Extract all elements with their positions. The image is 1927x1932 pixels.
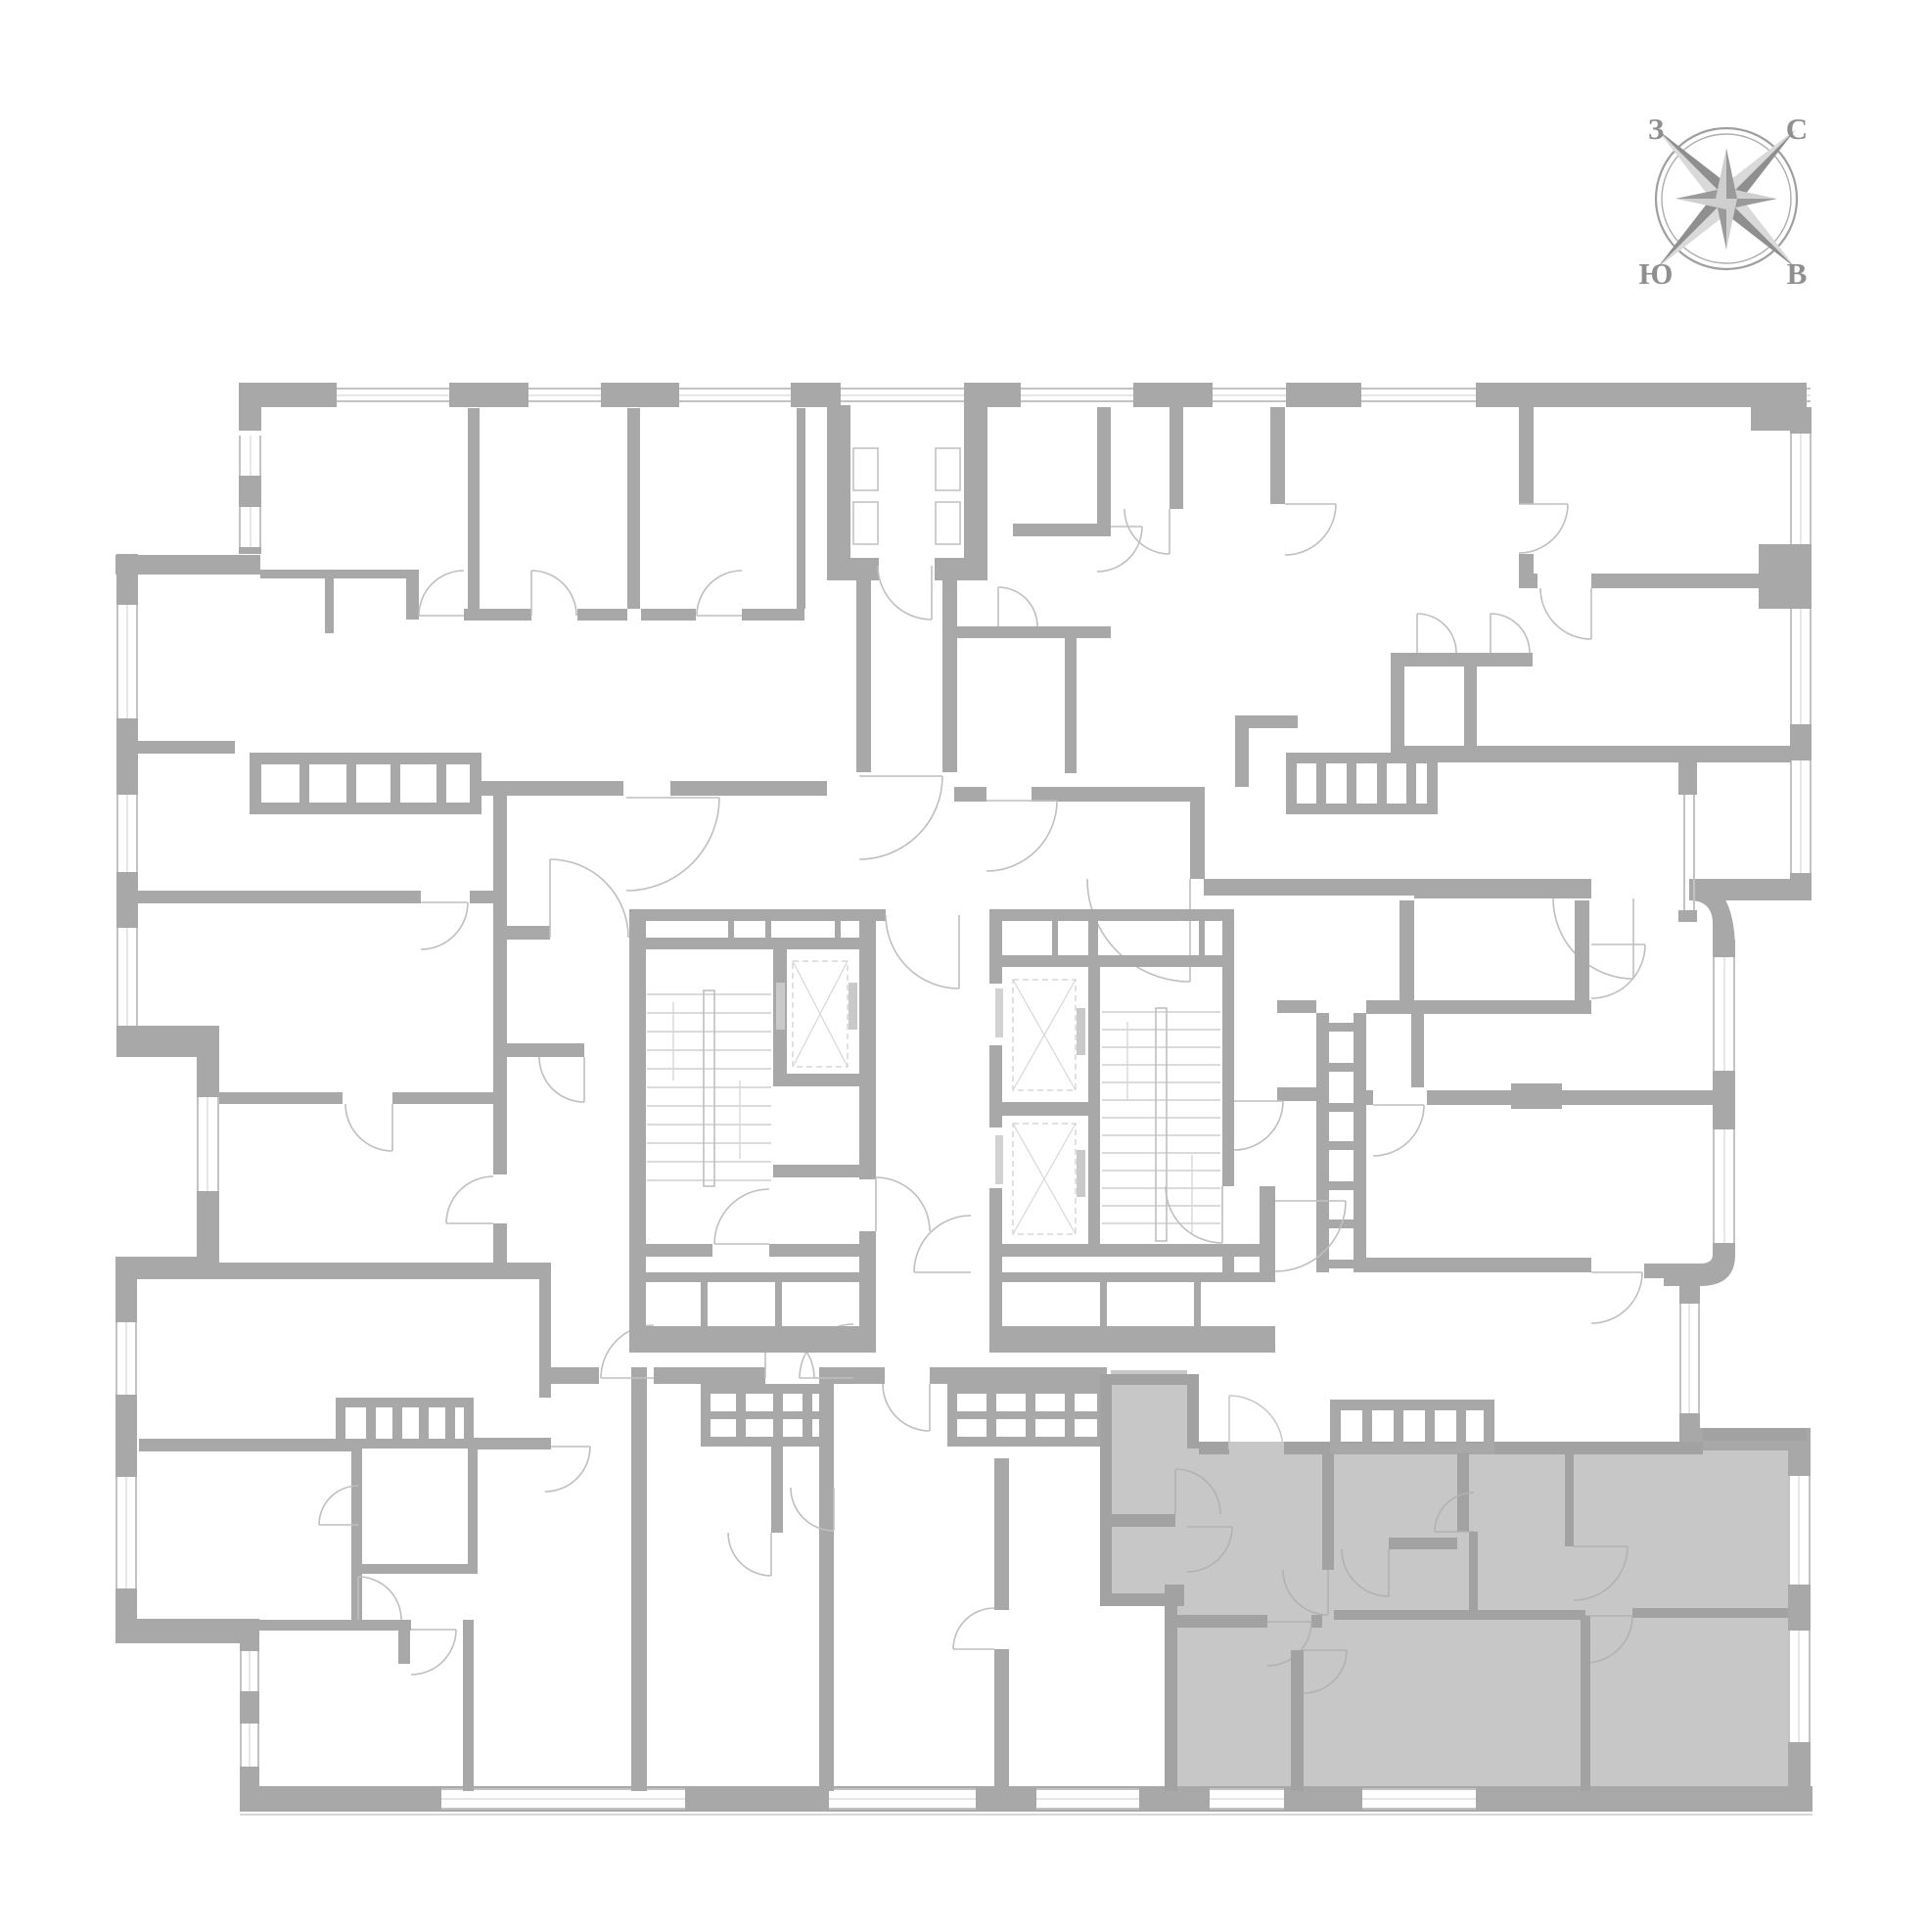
svg-text:Ю: Ю xyxy=(1639,256,1674,291)
svg-text:С: С xyxy=(1786,112,1808,146)
svg-text:В: В xyxy=(1787,256,1808,291)
svg-text:З: З xyxy=(1648,112,1664,146)
